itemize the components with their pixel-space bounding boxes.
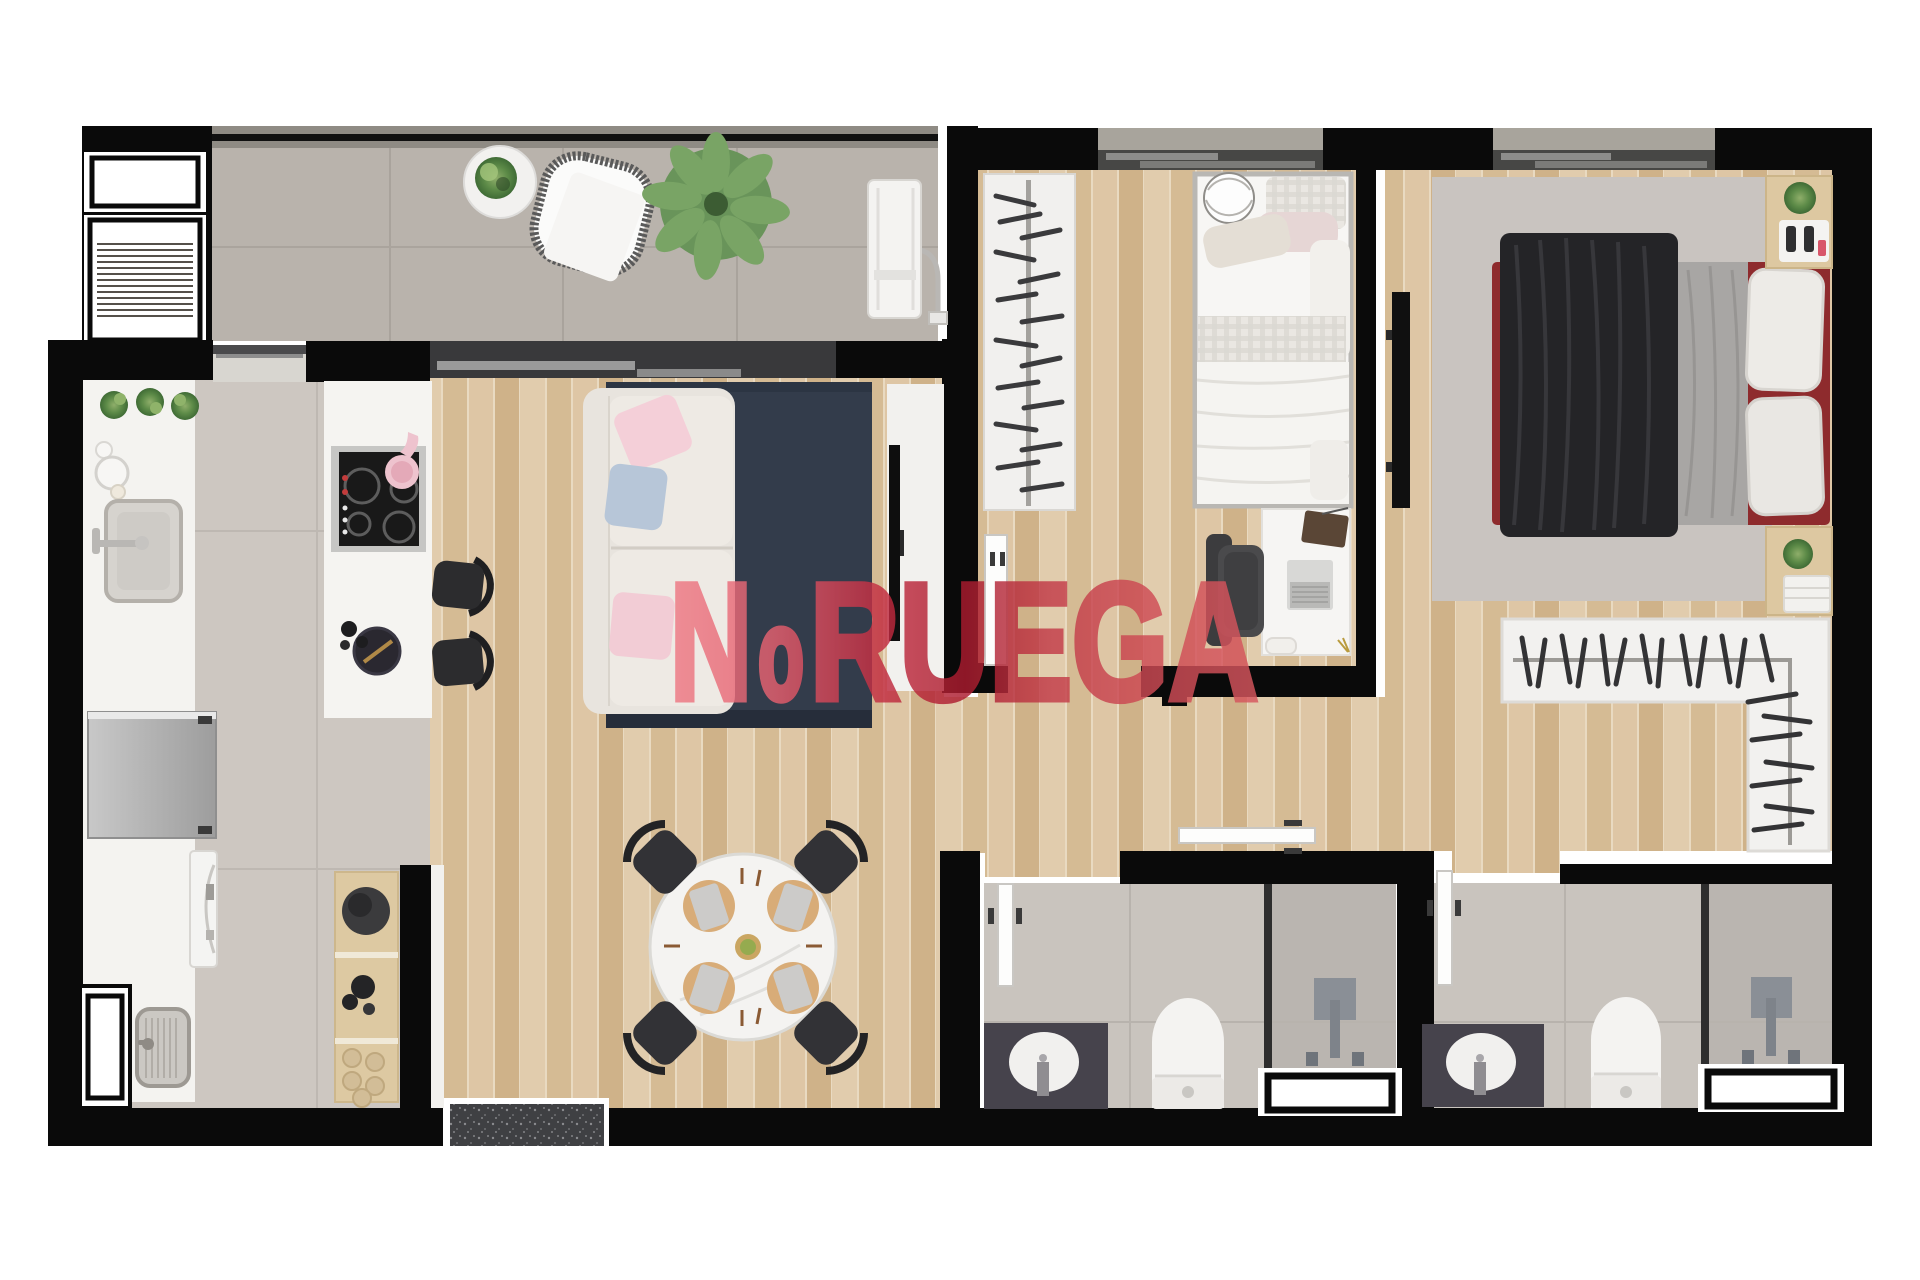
svg-text:N: N <box>670 550 752 735</box>
svg-text:RUEGA: RUEGA <box>810 550 1258 735</box>
svg-text:o: o <box>758 581 804 727</box>
